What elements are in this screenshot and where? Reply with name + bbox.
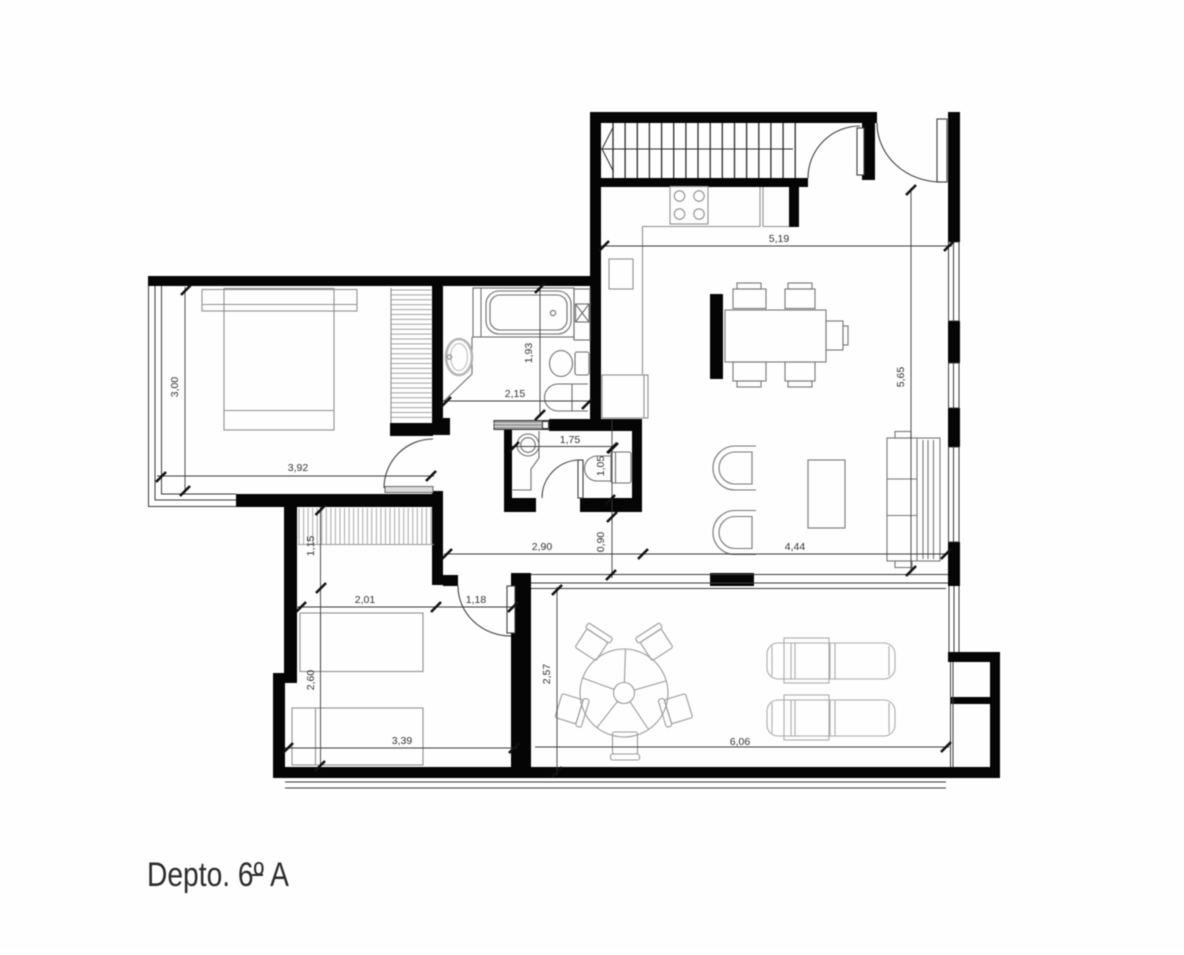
svg-text:0,90: 0,90 (595, 532, 607, 553)
svg-text:2,15: 2,15 (505, 388, 526, 400)
svg-text:5,65: 5,65 (895, 367, 907, 388)
svg-text:2,01: 2,01 (355, 594, 376, 606)
svg-text:3,92: 3,92 (288, 462, 309, 474)
svg-text:2,57: 2,57 (541, 664, 553, 685)
svg-text:1,05: 1,05 (595, 456, 607, 477)
svg-text:3,39: 3,39 (392, 735, 413, 747)
svg-text:2,60: 2,60 (305, 670, 317, 691)
svg-text:1,15: 1,15 (305, 536, 317, 557)
svg-text:2,90: 2,90 (532, 541, 553, 553)
svg-text:1,93: 1,93 (523, 343, 535, 364)
svg-text:5,19: 5,19 (769, 233, 790, 245)
svg-text:1,75: 1,75 (560, 434, 581, 446)
svg-text:3,00: 3,00 (169, 377, 181, 398)
svg-text:6,06: 6,06 (730, 736, 751, 748)
svg-text:1,18: 1,18 (466, 594, 487, 606)
svg-text:4,44: 4,44 (785, 541, 806, 553)
svg-text:Depto. 6º A: Depto. 6º A (147, 856, 289, 894)
